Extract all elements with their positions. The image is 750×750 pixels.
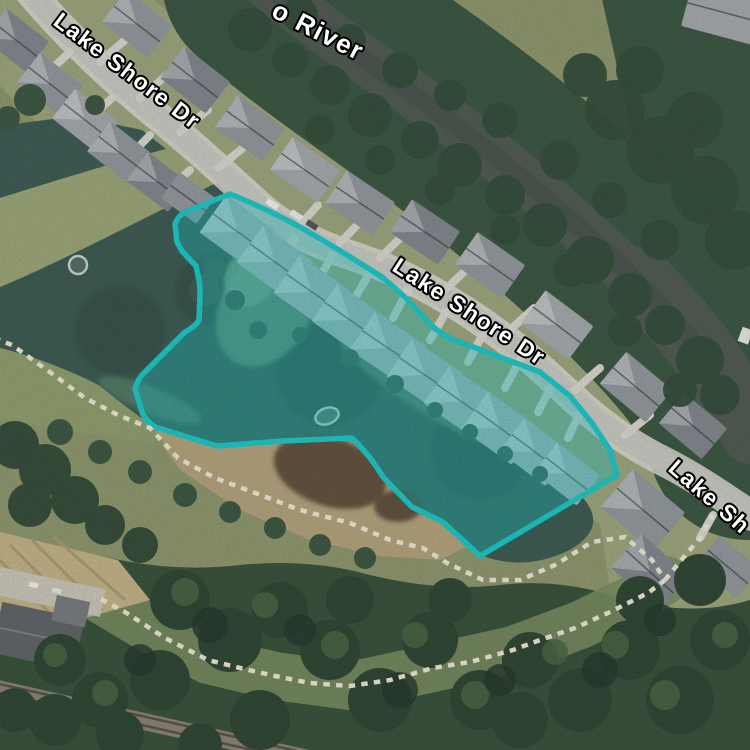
map-viewport[interactable]: o River Lake Shore Dr Lake Shore Dr Lake… [0, 0, 750, 750]
map-canvas[interactable]: o River Lake Shore Dr Lake Shore Dr Lake… [0, 0, 750, 750]
grain-light [0, 0, 750, 750]
